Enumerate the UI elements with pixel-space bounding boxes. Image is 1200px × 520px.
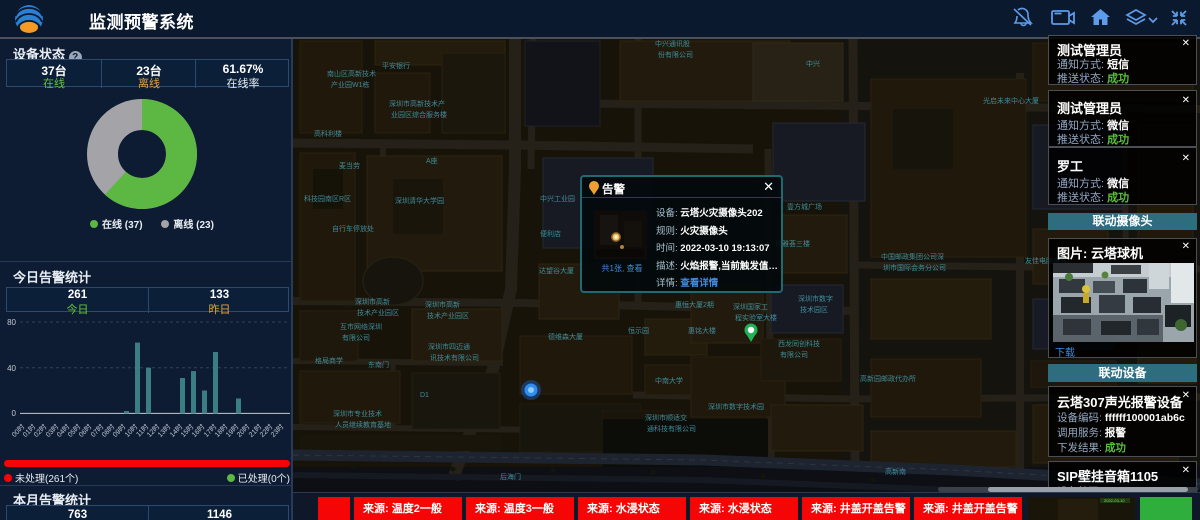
svg-text:中兴通讯股: 中兴通讯股	[655, 39, 690, 48]
svg-text:达望谷大厦: 达望谷大厦	[539, 266, 574, 275]
svg-text:份有限公司: 份有限公司	[658, 50, 693, 59]
svg-text:西龙同创科技: 西龙同创科技	[778, 339, 820, 348]
svg-text:高新南: 高新南	[885, 467, 906, 476]
svg-text:深圳市四迈通: 深圳市四迈通	[428, 342, 470, 351]
svg-text:中南大学: 中南大学	[655, 376, 683, 385]
svg-text:惠恒大厦2期: 惠恒大厦2期	[675, 300, 714, 309]
svg-text:A座: A座	[426, 156, 438, 165]
svg-text:平安银行: 平安银行	[382, 61, 410, 70]
svg-text:便利店: 便利店	[540, 229, 561, 238]
svg-text:深圳市高新: 深圳市高新	[355, 297, 390, 306]
svg-text:惠铭大楼: 惠铭大楼	[688, 326, 716, 335]
svg-text:科技园南区R区: 科技园南区R区	[304, 194, 351, 203]
svg-text:中国邮政集团公司深: 中国邮政集团公司深	[881, 252, 944, 261]
svg-text:有限公司: 有限公司	[342, 333, 370, 342]
svg-text:高科利楼: 高科利楼	[314, 129, 342, 138]
svg-text:深圳市专业技术: 深圳市专业技术	[333, 409, 382, 418]
svg-text:40: 40	[7, 364, 16, 373]
svg-text:中兴: 中兴	[806, 59, 820, 68]
svg-text:技术产业园区: 技术产业园区	[357, 308, 399, 317]
svg-text:80: 80	[7, 318, 16, 327]
svg-text:南山区高新技术: 南山区高新技术	[327, 69, 376, 78]
svg-text:恒示园: 恒示园	[628, 326, 649, 335]
svg-text:2022-03-10: 2022-03-10	[1104, 498, 1125, 503]
svg-text:业园区综合服务楼: 业园区综合服务楼	[391, 110, 447, 119]
svg-text:深圳清华大学园: 深圳清华大学园	[395, 196, 444, 205]
svg-text:壹方城广场: 壹方城广场	[787, 202, 822, 211]
svg-text:0: 0	[12, 409, 17, 418]
svg-text:产业园W1栋: 产业园W1栋	[331, 80, 370, 89]
svg-text:圳市国际会务分公司: 圳市国际会务分公司	[883, 263, 946, 272]
svg-text:后海门: 后海门	[500, 472, 521, 481]
svg-text:深圳市数字: 深圳市数字	[798, 294, 833, 303]
svg-text:程实验室大楼: 程实验室大楼	[735, 313, 777, 322]
svg-text:高新园邮政代办所: 高新园邮政代办所	[860, 374, 916, 383]
svg-text:技术园区: 技术园区	[800, 305, 828, 314]
svg-text:格局商学: 格局商学	[315, 356, 343, 365]
svg-text:深圳国家工: 深圳国家工	[733, 302, 768, 311]
svg-text:中兴工业园: 中兴工业园	[540, 194, 575, 203]
svg-text:讯技术有限公司: 讯技术有限公司	[430, 353, 479, 362]
svg-text:德维森大厦: 德维森大厦	[548, 332, 583, 341]
svg-text:自行车停放处: 自行车停放处	[332, 224, 374, 233]
svg-text:通科技有限公司: 通科技有限公司	[647, 424, 696, 433]
svg-text:麦当劳: 麦当劳	[339, 161, 360, 170]
svg-text:技术产业园区: 技术产业园区	[427, 311, 469, 320]
svg-text:东南门: 东南门	[368, 360, 389, 369]
svg-text:深圳市数字技术园: 深圳市数字技术园	[708, 402, 764, 411]
svg-text:光启未来中心大厦: 光启未来中心大厦	[983, 96, 1039, 105]
svg-text:深圳市顺适交: 深圳市顺适交	[645, 413, 687, 422]
svg-text:人员继续教育基地: 人员继续教育基地	[335, 420, 391, 429]
svg-text:有限公司: 有限公司	[780, 350, 808, 359]
svg-text:D1: D1	[420, 392, 429, 399]
svg-text:深圳市高新: 深圳市高新	[425, 300, 460, 309]
svg-text:深圳市高新技术产: 深圳市高新技术产	[389, 99, 445, 108]
svg-text:互市网络深圳: 互市网络深圳	[340, 322, 382, 331]
